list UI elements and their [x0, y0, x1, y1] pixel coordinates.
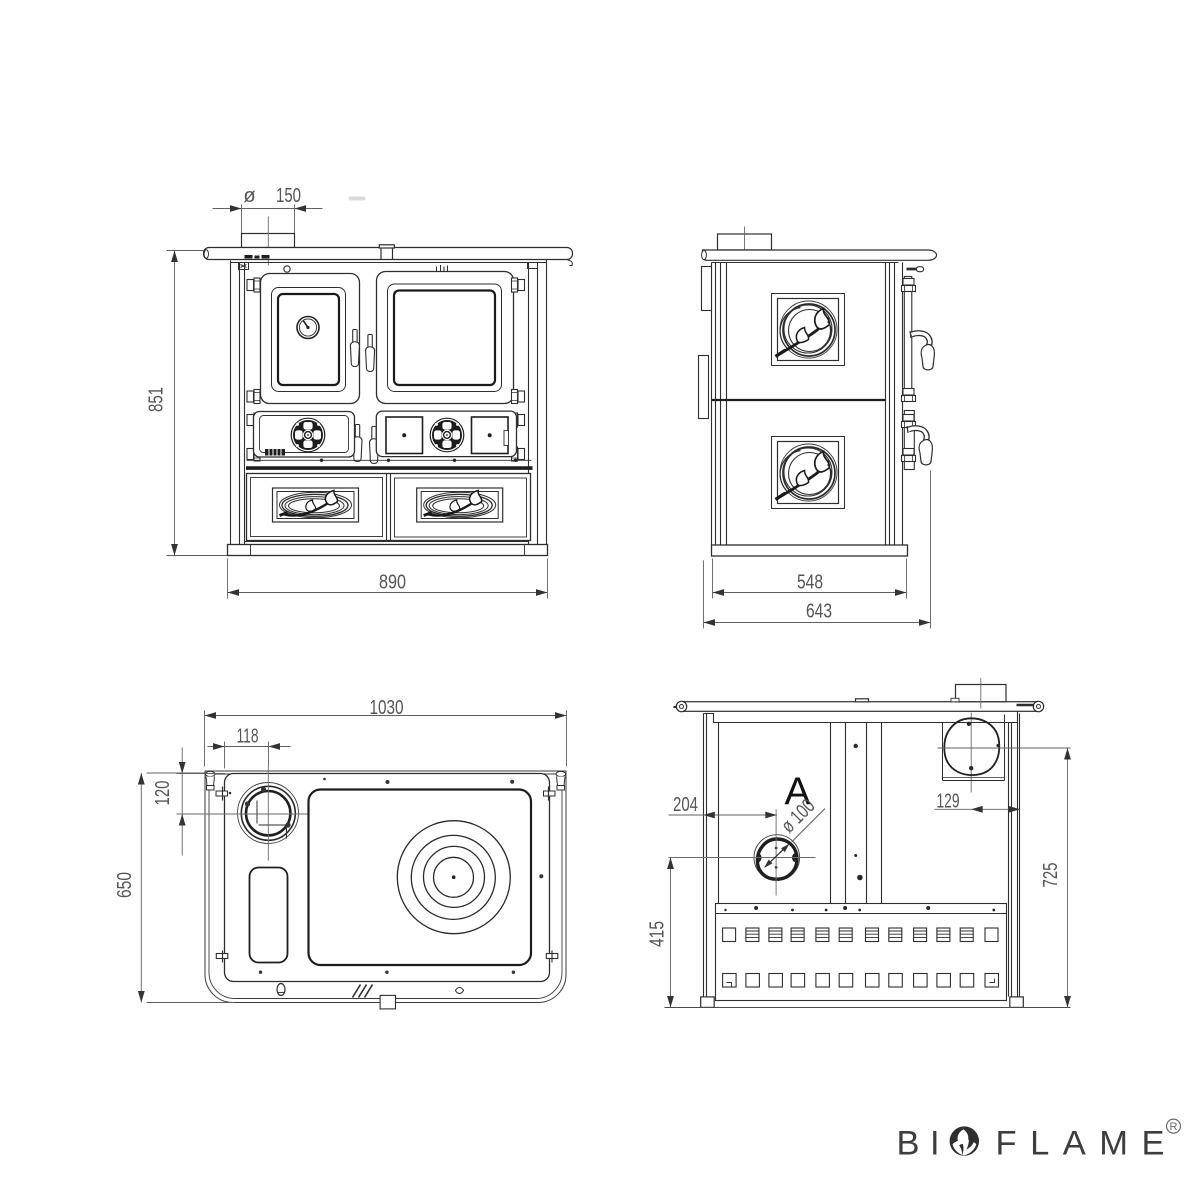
- svg-text:B: B: [897, 1124, 935, 1162]
- svg-text:204: 204: [673, 794, 698, 816]
- svg-text:150: 150: [276, 185, 301, 207]
- svg-text:643: 643: [806, 601, 832, 623]
- svg-text:FLAME: FLAME: [996, 1124, 1179, 1162]
- svg-text:851: 851: [146, 387, 168, 412]
- svg-text:129: 129: [937, 791, 960, 813]
- svg-text:120: 120: [152, 781, 174, 806]
- svg-text:ø: ø: [243, 185, 255, 207]
- svg-text:415: 415: [647, 921, 669, 947]
- svg-text:725: 725: [1040, 863, 1062, 888]
- svg-text:ø 100: ø 100: [777, 795, 819, 837]
- svg-text:890: 890: [379, 572, 406, 594]
- svg-text:1030: 1030: [370, 697, 404, 719]
- svg-text:548: 548: [797, 572, 823, 594]
- svg-text:R: R: [1170, 1121, 1178, 1133]
- svg-text:118: 118: [237, 726, 259, 748]
- svg-text:650: 650: [114, 872, 136, 898]
- svg-text:I: I: [930, 1124, 940, 1162]
